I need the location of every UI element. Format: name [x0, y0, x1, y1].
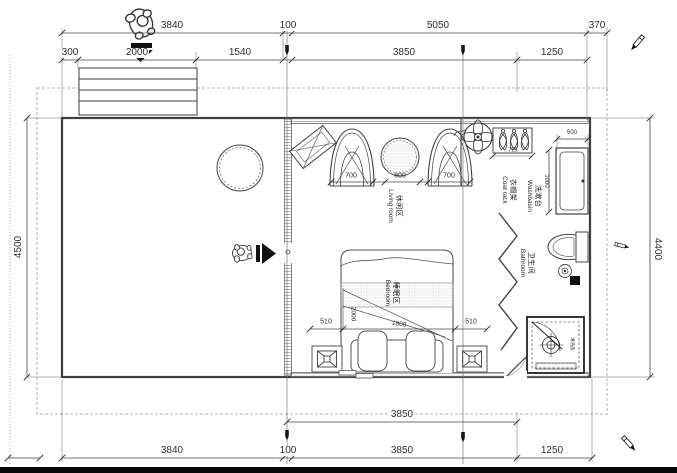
- living-room-label-en: Living room: [386, 189, 393, 223]
- dim-725: 725: [507, 148, 518, 154]
- dim-600: 600: [393, 173, 407, 180]
- living-room-label: 休闲区 Living room: [386, 189, 402, 223]
- dim-300: 300: [61, 48, 80, 58]
- dim-1250-bottom: 1250: [540, 446, 564, 456]
- coat-rack-label: 衣帽架 Coat rack: [500, 176, 516, 204]
- pen-icon-top-right: [630, 35, 645, 52]
- axis-marker: [285, 430, 289, 441]
- dim-3850-bottom: 3850: [390, 446, 414, 456]
- dim-500: 500: [566, 130, 578, 136]
- washbasin: [556, 148, 588, 214]
- dim-700-right: 700: [442, 173, 456, 180]
- bathroom-label: 卫生间 Bathroom: [518, 249, 534, 277]
- living-room-label-zh: 休闲区: [394, 195, 402, 217]
- bedroom-label: 睡眠区 Bedroom: [383, 280, 399, 306]
- dim-100-bottom: 100: [279, 446, 298, 456]
- coat-rack-label-zh: 衣帽架: [508, 179, 516, 201]
- dim-2000-top: 2000: [125, 48, 149, 58]
- dim-3850-top: 3850: [392, 48, 416, 58]
- dim-3840-top: 3840: [160, 21, 184, 31]
- stairs: [79, 68, 197, 115]
- washbasin-label-en: Washbasin: [525, 180, 532, 212]
- dim-510-left: 510: [319, 319, 333, 326]
- window-wall-top: [291, 119, 588, 124]
- shower-label: 淋浴房: [569, 337, 575, 351]
- dim-4400-right: 4400: [652, 237, 662, 261]
- bed: [341, 250, 453, 373]
- axis-marker: [461, 45, 465, 56]
- pillow-right: [406, 331, 435, 371]
- dim-3850-bottom-inner: 3850: [390, 410, 414, 420]
- shower-room: [527, 317, 584, 373]
- bathroom-label-en: Bathroom: [518, 249, 525, 277]
- axis-marker: [285, 45, 289, 56]
- pen-icon-right: [615, 242, 630, 249]
- coat-rack-label-en: Coat rack: [500, 176, 507, 204]
- tea-table: [381, 138, 419, 176]
- dim-4500-left: 4500: [14, 235, 24, 259]
- washbasin-label: 洗漱台 Washbasin: [525, 180, 541, 212]
- dim-1540: 1540: [228, 48, 252, 58]
- left-room: [217, 145, 263, 191]
- pillow-left: [358, 331, 387, 371]
- bedroom-label-en: Bedroom: [383, 280, 390, 306]
- axis-marker: [461, 432, 465, 443]
- floor-plan-canvas: 3840 100 5050 370 300 2000 1540 3850 125…: [0, 0, 677, 473]
- dim-1250-top: 1250: [540, 48, 564, 58]
- floor-drain: [570, 276, 580, 285]
- person-top-icon: [124, 5, 159, 41]
- bedroom-label-zh: 睡眠区: [391, 282, 399, 304]
- bathroom-label-zh: 卫生间: [526, 252, 534, 274]
- round-table: [217, 145, 263, 191]
- floor-plan-drawing: [0, 0, 677, 473]
- nightstand-left: [312, 346, 342, 372]
- dim-700-left: 700: [344, 173, 358, 180]
- dim-2000-bed: 2000: [349, 306, 356, 322]
- pen-icon-bottom-right: [622, 436, 637, 452]
- faucet-dot: [582, 180, 585, 183]
- building-walls: [62, 118, 590, 378]
- dim-3840-bottom: 3840: [160, 446, 184, 456]
- washbasin-label-zh: 洗漱台: [533, 185, 541, 207]
- bottom-border-bar: [0, 467, 677, 473]
- dim-5050-top: 5050: [426, 21, 450, 31]
- dim-510-right: 510: [464, 319, 478, 326]
- dim-370-top: 370: [588, 21, 607, 31]
- dim-100-top: 100: [279, 21, 298, 31]
- dim-1000: 1000: [543, 173, 549, 188]
- nightstand-right: [457, 346, 487, 372]
- shower-threshold: [536, 363, 576, 369]
